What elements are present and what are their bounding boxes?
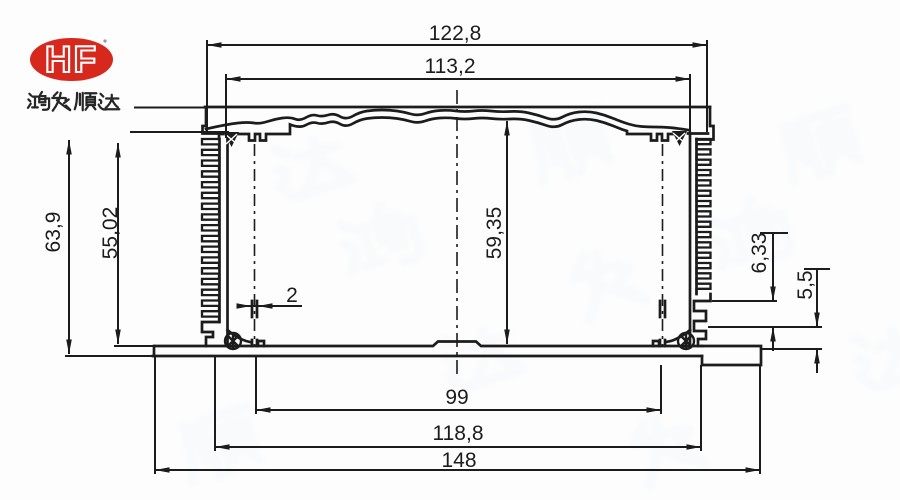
svg-text:55,02: 55,02 [99,207,122,260]
svg-text:99: 99 [445,386,468,409]
svg-text:118,8: 118,8 [433,422,484,445]
svg-text:5,5: 5,5 [794,270,817,299]
svg-text:63,9: 63,9 [42,212,65,253]
svg-text:113,2: 113,2 [425,55,476,78]
svg-text:148: 148 [441,449,476,472]
svg-text:2: 2 [286,284,298,307]
svg-text:HF: HF [45,39,98,80]
svg-text:59,35: 59,35 [483,207,506,260]
svg-text:6,33: 6,33 [748,233,771,274]
svg-text:122,8: 122,8 [429,22,482,45]
